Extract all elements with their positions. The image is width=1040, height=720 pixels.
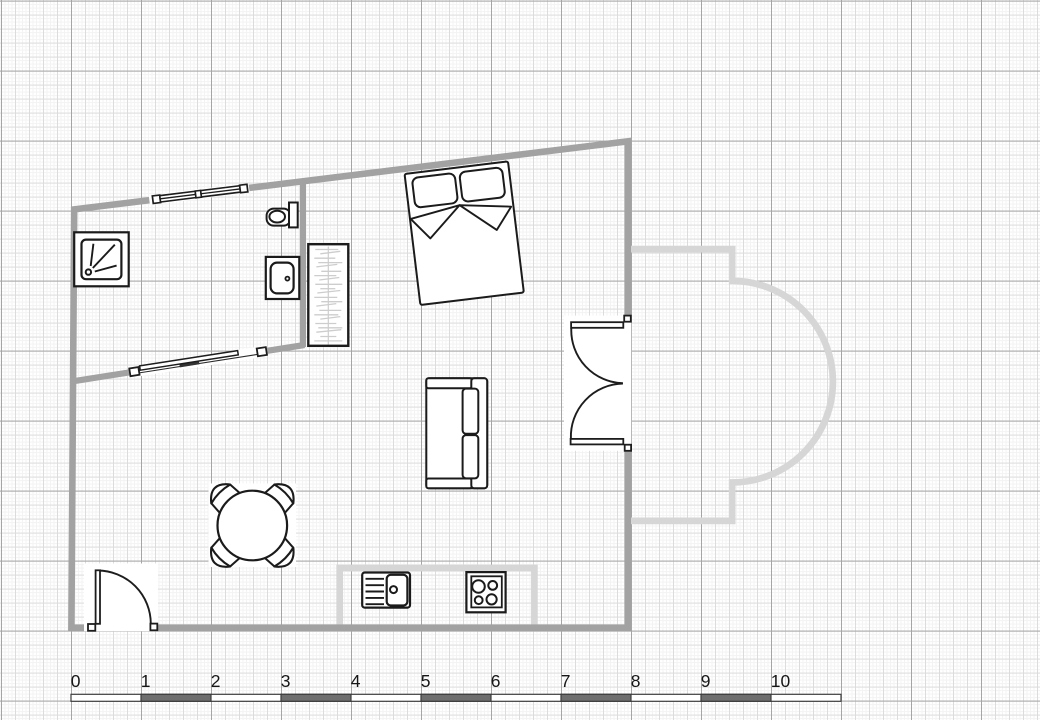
svg-text:1: 1 — [141, 671, 151, 691]
svg-text:9: 9 — [701, 671, 711, 691]
svg-text:7: 7 — [561, 671, 571, 691]
svg-text:8: 8 — [631, 671, 641, 691]
svg-text:3: 3 — [281, 671, 291, 691]
svg-text:5: 5 — [421, 671, 431, 691]
svg-text:4: 4 — [351, 671, 361, 691]
svg-text:2: 2 — [211, 671, 221, 691]
svg-text:10: 10 — [771, 671, 791, 691]
svg-text:0: 0 — [71, 671, 81, 691]
svg-text:6: 6 — [491, 671, 501, 691]
